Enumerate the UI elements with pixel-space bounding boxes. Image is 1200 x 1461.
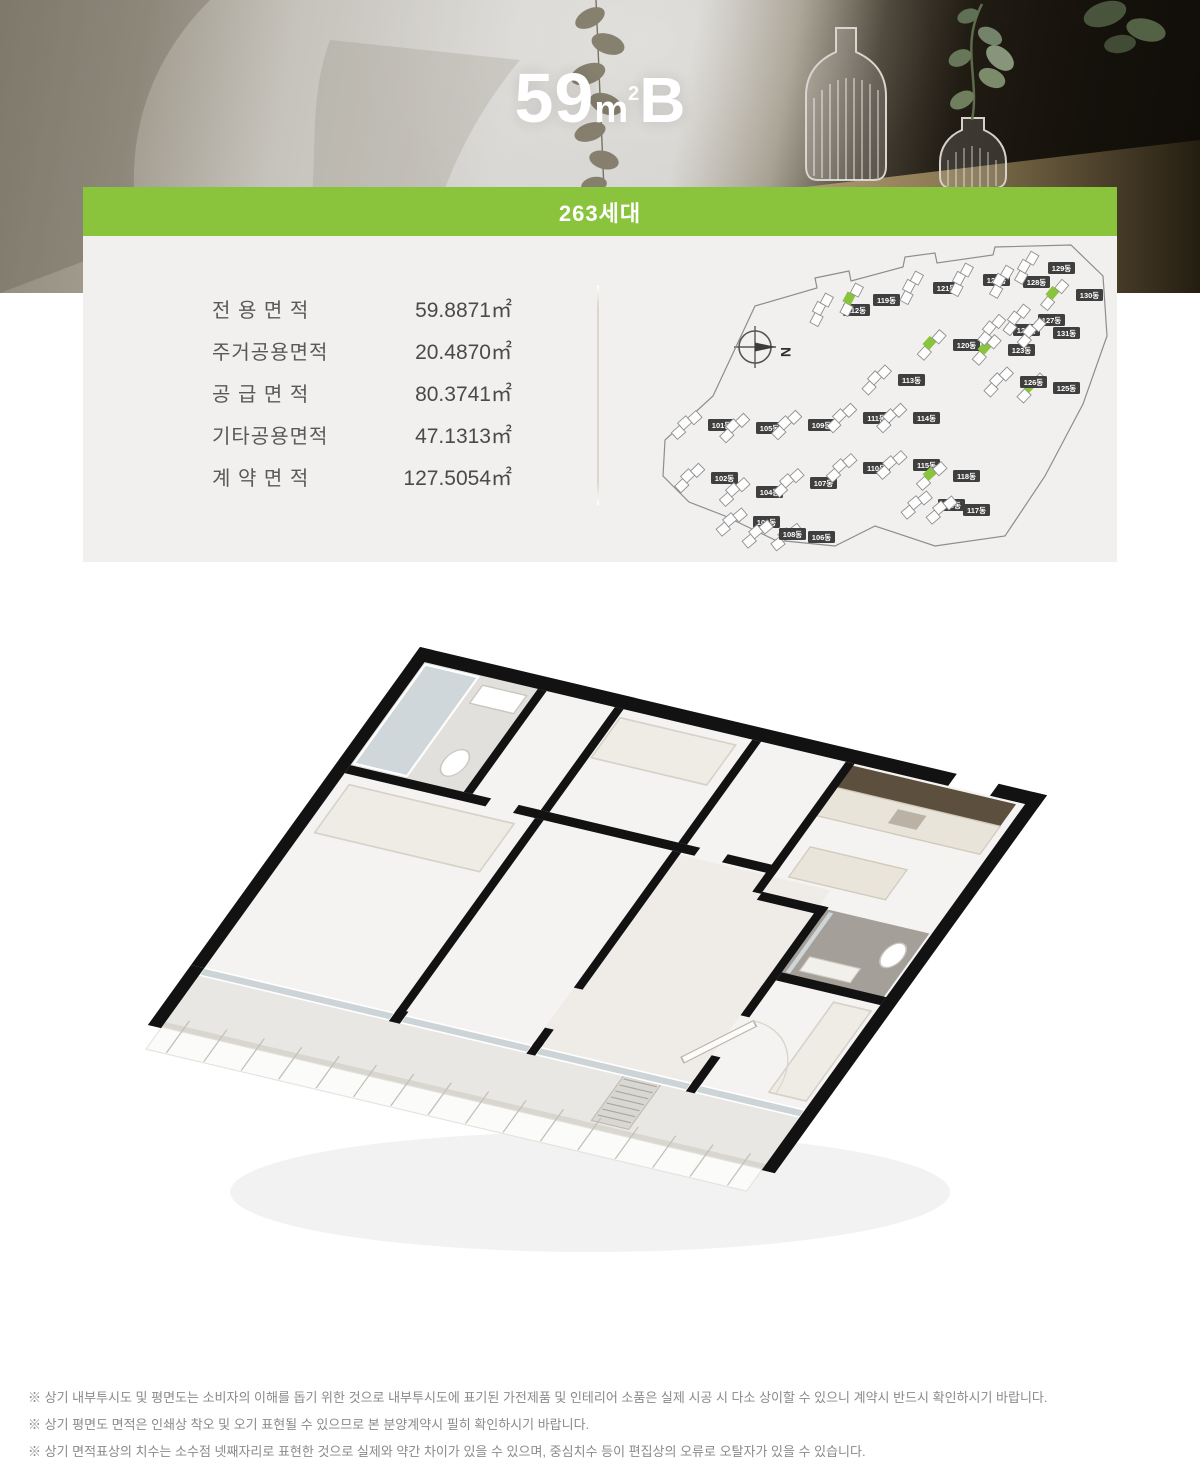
- building-marker: 103동: [714, 506, 780, 536]
- area-label: 주거공용면적: [212, 336, 328, 365]
- household-count-banner: 263세대: [83, 187, 1117, 236]
- area-value: 59.8871㎡: [415, 294, 512, 324]
- building-marker: 114동: [875, 401, 940, 433]
- svg-text:120동: 120동: [957, 341, 977, 350]
- corner-foliage: [1080, 0, 1168, 55]
- page-title: 59m2B: [0, 58, 1200, 138]
- building-marker: 109동: [770, 408, 835, 440]
- svg-text:114동: 114동: [917, 414, 936, 423]
- svg-text:129동: 129동: [1052, 264, 1072, 273]
- building-marker: 107동: [771, 466, 837, 497]
- svg-text:131동: 131동: [1057, 329, 1077, 338]
- svg-text:108동: 108동: [783, 530, 803, 539]
- svg-text:125동: 125동: [1057, 384, 1077, 393]
- area-label: 기타공용면적: [212, 420, 328, 449]
- title-unit: m: [594, 89, 628, 131]
- table-row: 전 용 면 적 59.8871㎡: [212, 294, 512, 336]
- area-label: 계 약 면 적: [212, 462, 309, 491]
- title-type-letter: B: [639, 64, 685, 136]
- svg-text:128동: 128동: [1027, 278, 1047, 287]
- disclaimer-line: ※ 상기 면적표상의 치수는 소수점 넷째자리로 표현한 것으로 실제와 약간 …: [28, 1438, 1178, 1461]
- unit-type-page: 59m2B 263세대 전 용 면 적 59.8871㎡ 주거공용면적 20.4…: [0, 0, 1200, 1461]
- floor-plan-3d: [120, 592, 1080, 1352]
- svg-text:113동: 113동: [902, 376, 921, 385]
- area-label: 공 급 면 적: [212, 378, 309, 407]
- table-row: 기타공용면적 47.1313㎡: [212, 420, 512, 462]
- table-row: 계 약 면 적 127.5054㎡: [212, 462, 512, 504]
- svg-text:126동: 126동: [1024, 378, 1044, 387]
- title-superscript: 2: [628, 83, 639, 105]
- area-table: 전 용 면 적 59.8871㎡ 주거공용면적 20.4870㎡ 공 급 면 적…: [212, 294, 512, 504]
- building-marker: 110동: [824, 451, 890, 482]
- info-panel: 전 용 면 적 59.8871㎡ 주거공용면적 20.4870㎡ 공 급 면 적…: [83, 236, 1117, 562]
- disclaimer-notes: ※ 상기 내부투시도 및 평면도는 소비자의 이해를 돕기 위한 것으로 내부투…: [28, 1384, 1178, 1461]
- area-value: 20.4870㎡: [415, 336, 512, 366]
- svg-text:123동: 123동: [1012, 346, 1032, 355]
- svg-text:130동: 130동: [1080, 291, 1100, 300]
- svg-text:106동: 106동: [812, 533, 832, 542]
- site-plan-map: N 101동102동103동104동105동106동107동108동109동11…: [603, 244, 1117, 556]
- disclaimer-line: ※ 상기 평면도 면적은 인쇄상 착오 및 오기 표현될 수 있으므로 본 분양…: [28, 1411, 1178, 1438]
- table-row: 주거공용면적 20.4870㎡: [212, 336, 512, 378]
- title-number: 59: [514, 59, 594, 137]
- area-label: 전 용 면 적: [212, 294, 309, 323]
- area-value: 127.5054㎡: [403, 462, 512, 492]
- svg-text:117동: 117동: [967, 506, 986, 515]
- building-marker: 126동: [982, 365, 1047, 397]
- area-value: 47.1313㎡: [415, 420, 512, 450]
- svg-text:N: N: [778, 347, 794, 357]
- building-markers: 101동102동103동104동105동106동107동108동109동110동…: [669, 250, 1103, 551]
- svg-text:119동: 119동: [877, 296, 896, 305]
- area-value: 80.3741㎡: [415, 378, 512, 408]
- building-marker: 112동: [807, 292, 870, 327]
- household-count-label: 263세대: [559, 196, 641, 228]
- building-marker: 113동: [860, 363, 925, 395]
- divider: [597, 285, 599, 505]
- disclaimer-line: ※ 상기 내부투시도 및 평면도는 소비자의 이해를 돕기 위한 것으로 내부투…: [28, 1384, 1178, 1411]
- svg-text:118동: 118동: [957, 472, 976, 481]
- building-marker: 120동: [915, 328, 980, 361]
- svg-text:102동: 102동: [715, 474, 735, 483]
- building-marker: 105동: [718, 411, 783, 443]
- table-row: 공 급 면 적 80.3741㎡: [212, 378, 512, 420]
- plan-iso-group: [133, 647, 1047, 1194]
- building-marker: 121동: [897, 270, 960, 305]
